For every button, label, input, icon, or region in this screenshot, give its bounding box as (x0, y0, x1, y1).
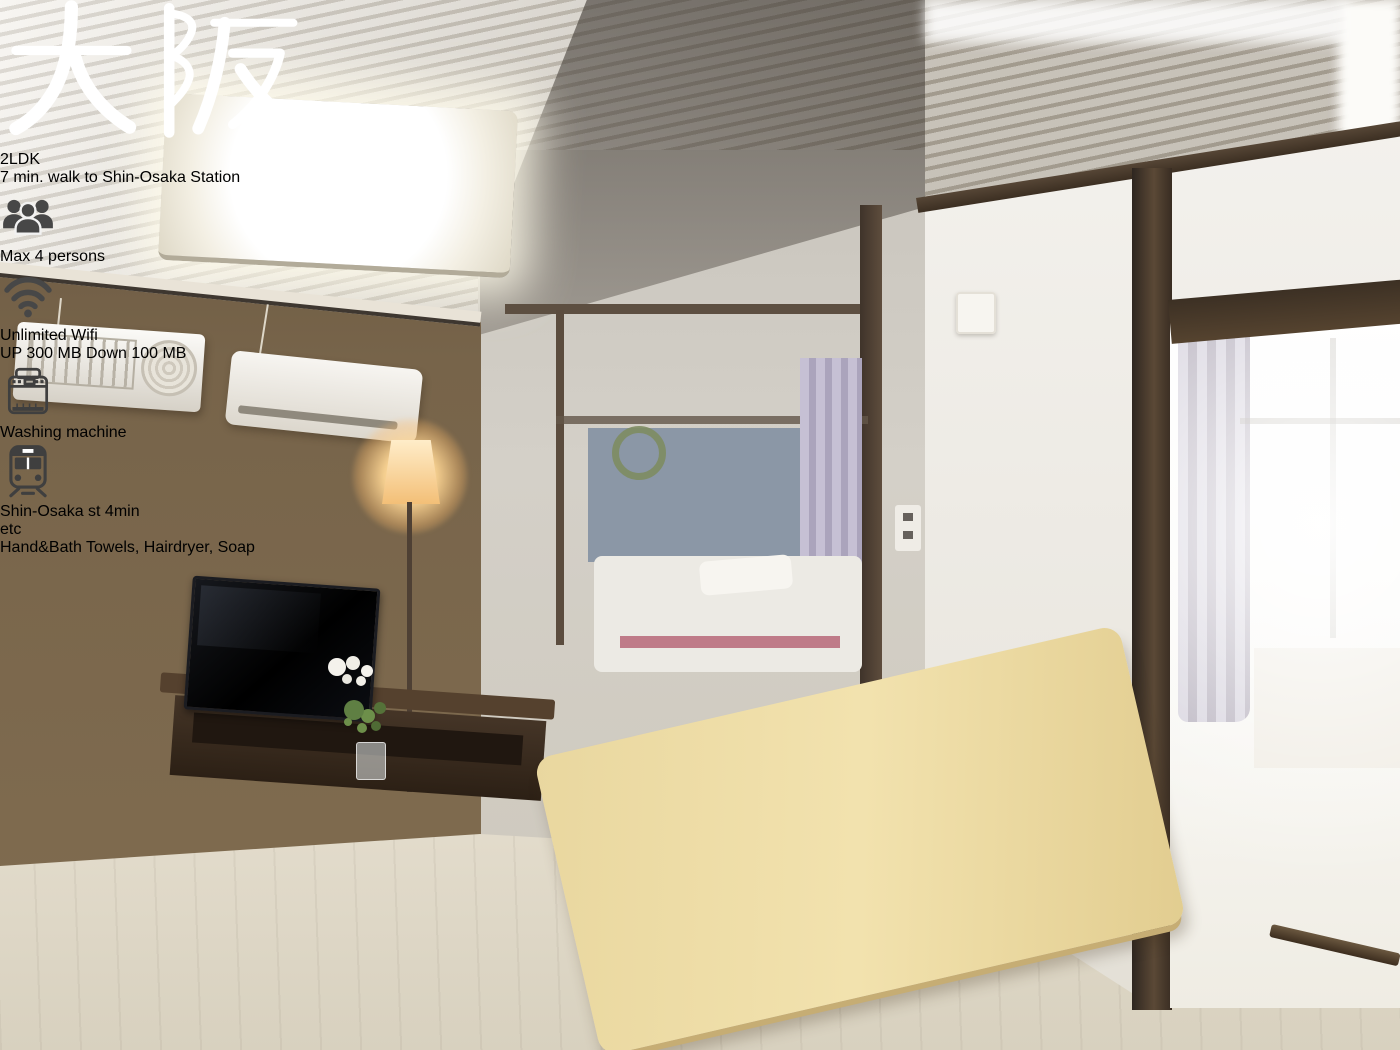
amenity-tile (0, 442, 304, 503)
amenity-row-wifi: Unlimited Wifi UP 300 MB Down 100 MB (0, 266, 304, 363)
capacity-prefix: Max (0, 248, 30, 265)
kanji-dai (16, 7, 130, 129)
wifi-label: Unlimited Wifi (0, 327, 304, 345)
tv-glare (197, 585, 321, 653)
info-overlay-panel: 2LDK 7 min. walk to Shin-Osaka Station (0, 0, 304, 557)
ceiling-glare-top (925, 0, 1345, 42)
door-frame-post (556, 310, 564, 645)
doorway-opening (1170, 318, 1400, 1008)
station-label: Shin-Osaka st 4min (0, 503, 304, 521)
kanji-saka (169, 8, 295, 132)
train-icon (0, 442, 56, 498)
people-icon (0, 187, 56, 243)
green-plant (344, 700, 364, 720)
wifi-text: Unlimited Wifi UP 300 MB Down 100 MB (0, 327, 304, 363)
tagline: 7 min. walk to Shin-Osaka Station (0, 169, 304, 187)
wall-wreath (612, 426, 666, 480)
wall-outlet (895, 505, 921, 551)
amenity-tile (0, 266, 304, 327)
capacity-value: 4 (35, 248, 44, 265)
amenity-tile (0, 187, 304, 248)
etc-badge: etc (0, 521, 304, 539)
bedroom-curtain (800, 358, 862, 570)
capacity-text: Max 4 persons (0, 248, 304, 266)
etc-badge-label: etc (0, 521, 21, 538)
wifi-upload: UP 300 MB (0, 345, 82, 362)
wifi-speeds: UP 300 MB Down 100 MB (0, 345, 304, 363)
amenity-row-laundry: Washing machine (0, 363, 304, 442)
laundry-label: Washing machine (0, 424, 304, 442)
extras-label: Hand&Bath Towels, Hairdryer, Soap (0, 539, 304, 557)
light-switch (956, 292, 996, 334)
amenity-row-extras: etc Hand&Bath Towels, Hairdryer, Soap (0, 521, 304, 557)
amenity-tile (0, 363, 304, 424)
amenity-row-station: Shin-Osaka st 4min (0, 442, 304, 521)
capacity-suffix: persons (48, 248, 105, 265)
wifi-download: Down 100 MB (86, 345, 187, 362)
floor-lamp-shade (382, 440, 440, 504)
rental-listing-promo: 2LDK 7 min. walk to Shin-Osaka Station (0, 0, 1400, 1050)
wifi-icon (0, 266, 56, 322)
main-title-kanji (0, 0, 304, 151)
white-flowers (328, 658, 346, 676)
layout-subtitle: 2LDK (0, 151, 304, 169)
plant-glass (356, 742, 386, 780)
washing-machine-icon (0, 363, 56, 419)
daylight-glare (1170, 318, 1400, 1008)
amenity-row-capacity: Max 4 persons (0, 187, 304, 266)
bed-runner (620, 636, 840, 648)
